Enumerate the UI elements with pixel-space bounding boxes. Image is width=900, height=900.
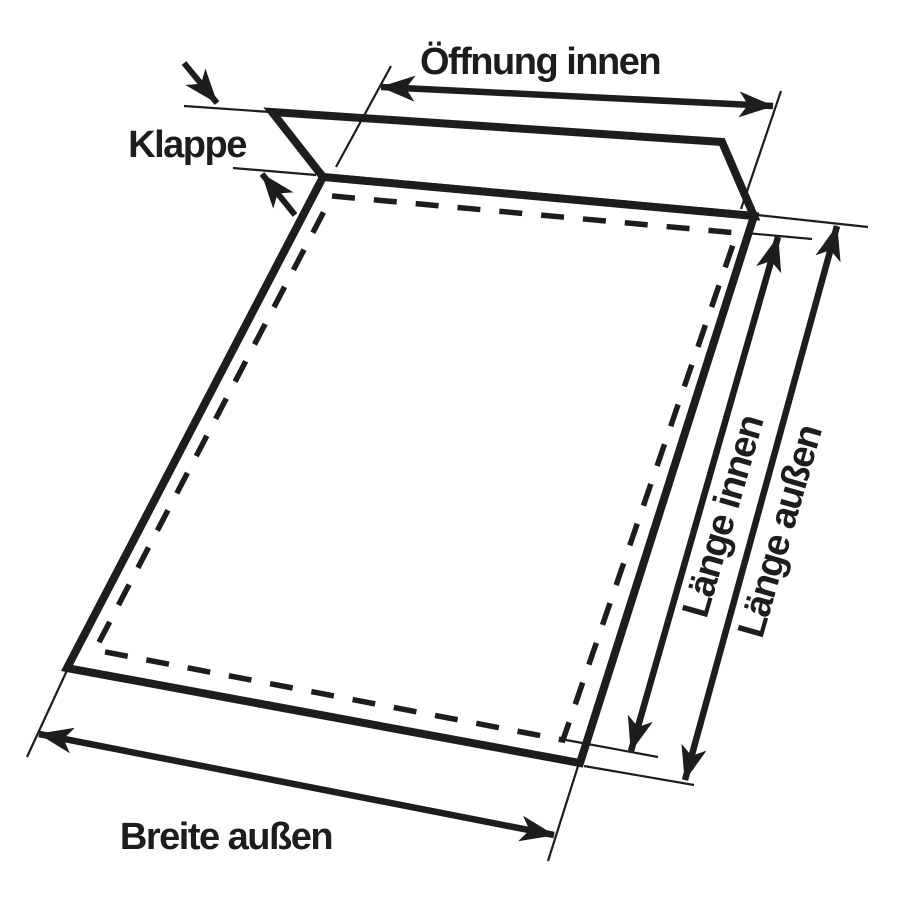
oeffnung-innen-dimension-arrow (381, 87, 773, 106)
oeffnung-innen-label: Öffnung innen (420, 40, 660, 83)
klappe-lower-pointer-arrow (262, 174, 295, 215)
klappe-upper-pointer-arrow (184, 63, 217, 103)
envelope-diagram: Öffnung innen Klappe Länge innen Länge a… (0, 0, 900, 900)
breite-aussen-label: Breite außen (120, 816, 332, 858)
oeffnung-right-extension-line (741, 91, 781, 209)
klappe-label: Klappe (128, 124, 246, 166)
diagram-canvas: Öffnung innen Klappe Länge innen Länge a… (0, 0, 900, 900)
breite-left-extension-line (27, 666, 69, 757)
klappe-bottom-extension-line (233, 168, 316, 175)
laenge-aussen-top-extension-line (757, 215, 868, 227)
klappe-top-extension-line (184, 106, 270, 112)
laenge-aussen-bottom-extension-line (584, 766, 694, 785)
breite-right-extension-line (548, 763, 579, 861)
